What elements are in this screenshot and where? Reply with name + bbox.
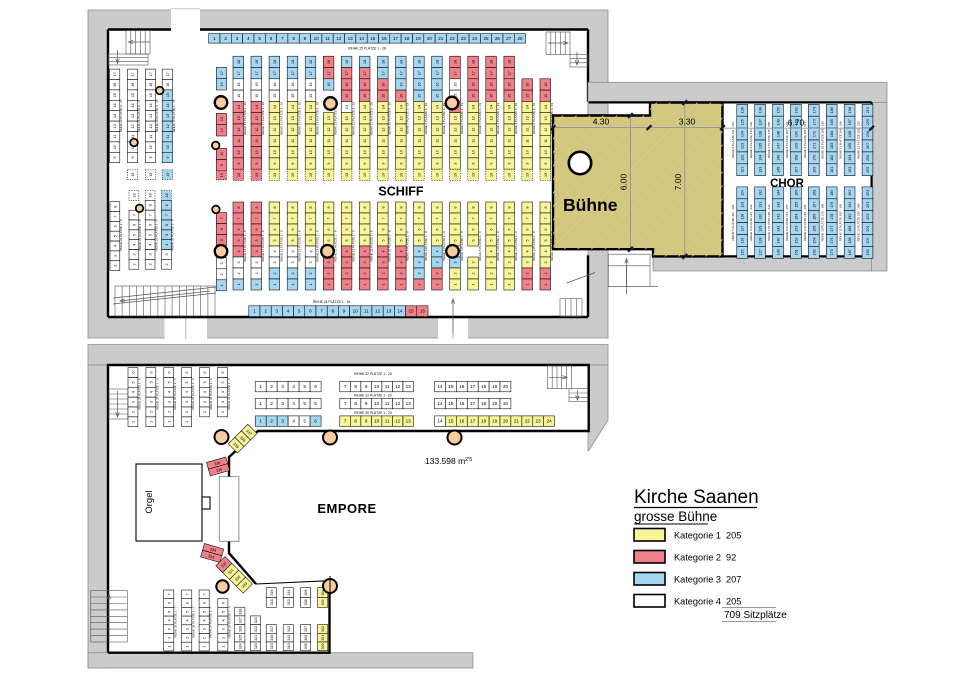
svg-text:9: 9 — [365, 401, 368, 406]
svg-text:10: 10 — [291, 150, 295, 154]
svg-text:5: 5 — [165, 234, 169, 236]
svg-text:10: 10 — [237, 150, 241, 154]
svg-text:14: 14 — [399, 105, 403, 109]
svg-text:7: 7 — [435, 217, 439, 219]
svg-text:12: 12 — [435, 128, 439, 132]
svg-text:3: 3 — [544, 261, 548, 263]
svg-text:1: 1 — [273, 283, 277, 285]
svg-text:11: 11 — [472, 139, 476, 143]
svg-text:5: 5 — [221, 611, 225, 613]
svg-text:325: 325 — [238, 635, 242, 641]
svg-text:15: 15 — [273, 94, 277, 98]
svg-text:196: 196 — [848, 131, 852, 137]
svg-text:123: 123 — [741, 143, 745, 149]
svg-text:16: 16 — [327, 82, 331, 86]
svg-text:2: 2 — [237, 272, 241, 274]
svg-text:12: 12 — [131, 124, 135, 128]
svg-text:127: 127 — [759, 249, 763, 255]
svg-text:11: 11 — [381, 139, 385, 143]
svg-text:2: 2 — [221, 637, 225, 639]
svg-text:6: 6 — [309, 309, 312, 314]
svg-text:1: 1 — [185, 421, 189, 423]
svg-text:3: 3 — [291, 261, 295, 263]
svg-text:5: 5 — [345, 239, 349, 241]
svg-text:2: 2 — [526, 272, 530, 274]
svg-text:12: 12 — [291, 128, 295, 132]
svg-text:2: 2 — [203, 637, 207, 639]
svg-text:7: 7 — [113, 215, 117, 217]
svg-text:7: 7 — [220, 217, 224, 219]
svg-text:8: 8 — [237, 206, 241, 208]
svg-text:2: 2 — [309, 272, 313, 274]
svg-text:5: 5 — [381, 239, 385, 241]
svg-text:155: 155 — [794, 202, 798, 208]
svg-text:REIHE 16 PLÄTZE 1 - 8: REIHE 16 PLÄTZE 1 - 8 — [279, 230, 283, 262]
svg-text:4: 4 — [292, 401, 295, 406]
svg-text:13: 13 — [435, 116, 439, 120]
svg-text:4: 4 — [292, 384, 295, 389]
svg-text:4: 4 — [167, 619, 171, 621]
svg-text:1: 1 — [253, 309, 256, 314]
svg-text:19: 19 — [416, 36, 422, 41]
svg-text:5: 5 — [237, 239, 241, 241]
svg-text:12: 12 — [363, 128, 367, 132]
svg-text:5: 5 — [303, 419, 306, 424]
svg-text:4: 4 — [255, 250, 259, 252]
svg-text:REIHE 6 PLÄTZE 133 - 138: REIHE 6 PLÄTZE 133 - 138 — [749, 122, 753, 158]
svg-text:144: 144 — [777, 190, 781, 196]
svg-text:12: 12 — [327, 128, 331, 132]
svg-text:149: 149 — [777, 119, 781, 125]
svg-text:2: 2 — [167, 637, 171, 639]
svg-text:9: 9 — [363, 163, 367, 165]
svg-text:14: 14 — [273, 105, 277, 109]
svg-text:203: 203 — [866, 202, 870, 208]
svg-text:15: 15 — [237, 94, 241, 98]
svg-text:17: 17 — [435, 71, 439, 75]
svg-text:20: 20 — [503, 419, 509, 424]
svg-text:5: 5 — [203, 611, 207, 613]
svg-text:REIHE 13 PLÄTZE 1 - 8: REIHE 13 PLÄTZE 1 - 8 — [334, 230, 338, 262]
svg-text:7: 7 — [472, 217, 476, 219]
svg-text:16: 16 — [454, 82, 458, 86]
svg-text:6.70: 6.70 — [788, 118, 805, 128]
svg-text:7: 7 — [363, 217, 367, 219]
svg-text:REIHE 18 PLÄTZE 1 - 8: REIHE 18 PLÄTZE 1 - 8 — [243, 230, 247, 262]
svg-text:13: 13 — [220, 117, 224, 121]
svg-text:6: 6 — [314, 419, 317, 424]
svg-text:169: 169 — [812, 167, 816, 173]
svg-text:7: 7 — [490, 217, 494, 219]
svg-text:17: 17 — [381, 71, 385, 75]
svg-text:1: 1 — [490, 283, 494, 285]
svg-text:15: 15 — [345, 94, 349, 98]
svg-text:REIHE 17 PLÄTZE 1 - 8: REIHE 17 PLÄTZE 1 - 8 — [261, 230, 265, 262]
svg-text:19: 19 — [255, 173, 259, 177]
svg-text:13: 13 — [508, 116, 512, 120]
svg-text:5: 5 — [298, 309, 301, 314]
svg-text:4: 4 — [132, 244, 136, 246]
svg-text:REIHE 7 PLÄTZE 1 - 8: REIHE 7 PLÄTZE 1 - 8 — [442, 231, 446, 261]
svg-text:9: 9 — [304, 36, 307, 41]
svg-text:15: 15 — [399, 94, 403, 98]
svg-text:14: 14 — [417, 105, 421, 109]
svg-text:19: 19 — [417, 173, 421, 177]
svg-text:10: 10 — [374, 419, 380, 424]
svg-text:187: 187 — [848, 249, 852, 255]
svg-text:REIHE 6 PLÄTZE 1 - 8: REIHE 6 PLÄTZE 1 - 8 — [460, 231, 464, 261]
svg-text:13: 13 — [386, 309, 392, 314]
svg-text:16: 16 — [544, 82, 548, 86]
svg-text:12: 12 — [395, 419, 401, 424]
svg-text:4: 4 — [381, 250, 385, 252]
svg-text:23: 23 — [461, 36, 467, 41]
svg-text:15: 15 — [363, 94, 367, 98]
svg-text:7: 7 — [281, 36, 284, 41]
svg-text:8: 8 — [544, 206, 548, 208]
svg-text:5: 5 — [221, 381, 225, 383]
svg-text:4: 4 — [273, 250, 277, 252]
svg-text:13: 13 — [131, 114, 135, 118]
svg-text:2: 2 — [270, 401, 273, 406]
svg-text:3: 3 — [132, 253, 136, 255]
svg-text:140: 140 — [777, 237, 781, 243]
svg-text:6: 6 — [149, 371, 153, 373]
svg-text:1: 1 — [526, 283, 530, 285]
svg-text:5: 5 — [113, 235, 117, 237]
svg-text:24: 24 — [547, 419, 553, 424]
svg-text:REIHE 12 PLÄTZE 9 - 19: REIHE 12 PLÄTZE 9 - 19 — [352, 102, 356, 135]
svg-text:200: 200 — [866, 237, 870, 243]
svg-text:2: 2 — [131, 411, 135, 413]
svg-text:197: 197 — [848, 119, 852, 125]
svg-text:191: 191 — [848, 202, 852, 208]
svg-text:163: 163 — [812, 249, 816, 255]
svg-text:REIHE 31 PLÄTZE 1 - 20: REIHE 31 PLÄTZE 1 - 20 — [354, 393, 392, 397]
svg-text:15: 15 — [113, 93, 117, 97]
svg-text:125: 125 — [741, 119, 745, 125]
svg-text:2: 2 — [399, 272, 403, 274]
svg-text:10: 10 — [255, 150, 259, 154]
svg-text:178: 178 — [830, 214, 834, 220]
svg-text:4: 4 — [508, 250, 512, 252]
svg-text:307: 307 — [304, 626, 308, 632]
svg-text:8: 8 — [417, 206, 421, 208]
svg-text:10: 10 — [417, 150, 421, 154]
svg-text:120: 120 — [741, 190, 745, 196]
svg-text:206: 206 — [866, 155, 870, 161]
svg-text:17: 17 — [345, 71, 349, 75]
svg-text:177: 177 — [830, 226, 834, 232]
svg-text:14: 14 — [345, 105, 349, 109]
svg-text:1: 1 — [381, 283, 385, 285]
svg-text:15: 15 — [448, 401, 454, 406]
svg-text:7: 7 — [345, 217, 349, 219]
svg-text:11: 11 — [385, 401, 390, 406]
svg-text:18: 18 — [273, 60, 277, 64]
svg-text:13: 13 — [166, 114, 170, 118]
svg-text:157: 157 — [794, 167, 798, 173]
svg-text:2: 2 — [221, 411, 225, 413]
svg-text:6: 6 — [149, 224, 153, 226]
svg-text:REIHE 2 PLÄTZE 1 - 8: REIHE 2 PLÄTZE 1 - 8 — [532, 231, 536, 261]
svg-text:15: 15 — [448, 419, 454, 424]
svg-text:4: 4 — [221, 391, 225, 393]
svg-text:2: 2 — [132, 263, 136, 265]
svg-text:2: 2 — [167, 411, 171, 413]
svg-text:19: 19 — [363, 173, 367, 177]
svg-text:1: 1 — [259, 419, 262, 424]
svg-text:16: 16 — [490, 82, 494, 86]
svg-text:18: 18 — [165, 193, 169, 197]
svg-text:16: 16 — [459, 419, 465, 424]
svg-text:150: 150 — [777, 107, 781, 113]
svg-text:15: 15 — [370, 36, 376, 41]
svg-text:142: 142 — [777, 214, 781, 220]
svg-text:9: 9 — [255, 163, 259, 165]
svg-text:SCHIFF: SCHIFF — [378, 185, 424, 199]
svg-text:REIHE 10 PLÄTZE 175 - 180: REIHE 10 PLÄTZE 175 - 180 — [821, 203, 825, 241]
svg-text:18: 18 — [255, 60, 259, 64]
svg-text:8: 8 — [490, 206, 494, 208]
svg-text:Bühne: Bühne — [563, 195, 618, 215]
svg-text:13: 13 — [255, 116, 259, 120]
svg-text:139: 139 — [777, 249, 781, 255]
svg-text:18: 18 — [472, 60, 476, 64]
svg-text:12: 12 — [149, 124, 153, 128]
svg-text:1: 1 — [255, 283, 259, 285]
svg-text:28: 28 — [517, 36, 523, 41]
svg-text:19: 19 — [508, 173, 512, 177]
svg-text:301: 301 — [321, 635, 325, 641]
svg-text:5: 5 — [309, 239, 313, 241]
svg-text:14: 14 — [149, 103, 153, 107]
svg-text:REIHE 29 PLÄTZE 1 - 7: REIHE 29 PLÄTZE 1 - 7 — [173, 606, 177, 638]
svg-text:Kategorie 3: Kategorie 3 — [674, 575, 721, 585]
svg-text:8: 8 — [291, 206, 295, 208]
svg-text:14: 14 — [309, 105, 313, 109]
svg-text:7: 7 — [237, 217, 241, 219]
svg-text:REIHE 7 PLÄTZE 145 - 150: REIHE 7 PLÄTZE 145 - 150 — [767, 122, 771, 158]
svg-text:16: 16 — [435, 82, 439, 86]
svg-text:3: 3 — [203, 401, 207, 403]
svg-text:15: 15 — [490, 94, 494, 98]
svg-text:REIHE 4 PLÄTZE 1 - 8: REIHE 4 PLÄTZE 1 - 8 — [496, 231, 500, 261]
svg-text:17: 17 — [508, 71, 512, 75]
svg-text:11: 11 — [309, 139, 313, 143]
svg-text:6: 6 — [399, 228, 403, 230]
svg-text:5: 5 — [303, 401, 306, 406]
svg-text:205: 205 — [866, 167, 870, 173]
svg-text:5: 5 — [303, 384, 306, 389]
svg-text:3: 3 — [221, 401, 225, 403]
svg-text:168: 168 — [812, 190, 816, 196]
svg-text:11: 11 — [345, 139, 349, 143]
svg-text:10: 10 — [526, 150, 530, 154]
svg-text:5: 5 — [167, 381, 171, 383]
svg-text:170: 170 — [812, 155, 816, 161]
svg-text:4: 4 — [292, 419, 295, 424]
svg-text:18: 18 — [237, 60, 241, 64]
svg-text:6: 6 — [221, 602, 225, 604]
svg-text:16: 16 — [291, 82, 295, 86]
svg-text:11: 11 — [385, 419, 390, 424]
svg-text:10: 10 — [363, 150, 367, 154]
svg-text:2: 2 — [203, 411, 207, 413]
svg-text:193: 193 — [848, 167, 852, 173]
svg-text:7: 7 — [320, 309, 323, 314]
svg-text:7: 7 — [417, 217, 421, 219]
svg-text:5: 5 — [131, 381, 135, 383]
svg-text:6: 6 — [270, 36, 273, 41]
svg-text:7: 7 — [273, 217, 277, 219]
svg-text:REIHE 23 PLÄTZE 2 - 8: REIHE 23 PLÄTZE 2 - 8 — [119, 219, 123, 251]
svg-text:181: 181 — [830, 167, 834, 173]
svg-text:192: 192 — [848, 190, 852, 196]
svg-text:REIHE 5 PLÄTZE 115 - 120: REIHE 5 PLÄTZE 115 - 120 — [731, 204, 735, 240]
svg-text:15: 15 — [166, 93, 170, 97]
svg-text:3: 3 — [255, 261, 259, 263]
svg-text:19: 19 — [220, 173, 224, 177]
svg-text:15: 15 — [381, 94, 385, 98]
svg-text:3: 3 — [167, 628, 171, 630]
svg-text:118: 118 — [741, 214, 745, 220]
svg-text:REIHE 24 PLÄTZE 1 - 16: REIHE 24 PLÄTZE 1 - 16 — [313, 300, 351, 304]
svg-text:12: 12 — [166, 124, 170, 128]
svg-text:5: 5 — [327, 239, 331, 241]
svg-text:5: 5 — [508, 239, 512, 241]
svg-text:9: 9 — [365, 384, 368, 389]
svg-text:8: 8 — [399, 206, 403, 208]
svg-text:5: 5 — [185, 611, 189, 613]
svg-text:16: 16 — [459, 384, 465, 389]
svg-text:1: 1 — [544, 283, 548, 285]
svg-text:5: 5 — [544, 239, 548, 241]
svg-text:6: 6 — [472, 228, 476, 230]
svg-text:19: 19 — [327, 173, 331, 177]
svg-text:122: 122 — [741, 155, 745, 161]
svg-text:Kategorie 2: Kategorie 2 — [674, 553, 721, 563]
svg-text:25: 25 — [483, 36, 489, 41]
svg-text:7: 7 — [344, 384, 347, 389]
svg-text:17: 17 — [470, 419, 476, 424]
svg-text:13: 13 — [454, 116, 458, 120]
svg-text:153: 153 — [794, 226, 798, 232]
svg-text:6: 6 — [255, 228, 259, 230]
svg-text:3: 3 — [185, 628, 189, 630]
svg-text:REIHE 25 PLÄTZE 1 - 28: REIHE 25 PLÄTZE 1 - 28 — [348, 47, 386, 51]
svg-text:10: 10 — [490, 150, 494, 154]
svg-text:2: 2 — [327, 272, 331, 274]
svg-text:REIHE 12 PLÄTZE 205 - 210: REIHE 12 PLÄTZE 205 - 210 — [857, 121, 861, 159]
svg-text:9: 9 — [435, 163, 439, 165]
svg-text:1: 1 — [167, 421, 171, 423]
svg-text:3: 3 — [345, 261, 349, 263]
svg-text:REIHE 21 PLÄTZE 2 - 8: REIHE 21 PLÄTZE 2 - 8 — [154, 219, 158, 251]
svg-text:164: 164 — [812, 237, 816, 243]
svg-text:10: 10 — [454, 150, 458, 154]
svg-text:207: 207 — [726, 575, 741, 585]
svg-text:4: 4 — [309, 250, 313, 252]
svg-text:4: 4 — [435, 250, 439, 252]
svg-text:6: 6 — [167, 602, 171, 604]
svg-text:171: 171 — [812, 143, 816, 149]
svg-text:17: 17 — [220, 71, 224, 75]
svg-text:REIHE 5 PLÄTZE 1 - 8: REIHE 5 PLÄTZE 1 - 8 — [478, 231, 482, 261]
svg-text:6: 6 — [131, 371, 135, 373]
svg-text:15: 15 — [417, 94, 421, 98]
svg-text:16: 16 — [237, 82, 241, 86]
svg-text:REIHE 4 PLÄTZE 9 - 19: REIHE 4 PLÄTZE 9 - 19 — [496, 102, 500, 134]
svg-text:18: 18 — [399, 60, 403, 64]
svg-text:13: 13 — [472, 116, 476, 120]
svg-text:REIHE 8 PLÄTZE 1 - 8: REIHE 8 PLÄTZE 1 - 8 — [424, 231, 428, 261]
svg-text:8: 8 — [454, 206, 458, 208]
svg-text:6: 6 — [291, 228, 295, 230]
svg-text:156: 156 — [794, 190, 798, 196]
svg-text:4: 4 — [185, 391, 189, 393]
svg-text:92: 92 — [726, 553, 736, 563]
svg-text:2: 2 — [291, 272, 295, 274]
svg-text:186: 186 — [830, 107, 834, 113]
svg-text:7: 7 — [508, 217, 512, 219]
svg-text:8: 8 — [309, 206, 313, 208]
svg-text:14: 14 — [437, 419, 443, 424]
svg-text:13: 13 — [417, 116, 421, 120]
svg-text:321: 321 — [254, 635, 258, 641]
svg-text:3: 3 — [381, 261, 385, 263]
svg-text:7: 7 — [344, 401, 347, 406]
svg-text:11: 11 — [385, 384, 390, 389]
svg-text:REIHE 1 PLÄTZE 9 - 19: REIHE 1 PLÄTZE 9 - 19 — [550, 102, 554, 134]
svg-text:REIHE 7 PLÄTZE 139 - 144: REIHE 7 PLÄTZE 139 - 144 — [767, 204, 771, 240]
svg-text:6: 6 — [203, 371, 207, 373]
svg-text:REIHE 3 PLÄTZE 1 - 8: REIHE 3 PLÄTZE 1 - 8 — [514, 231, 518, 261]
svg-text:320: 320 — [254, 643, 258, 649]
svg-text:309: 309 — [304, 590, 308, 596]
svg-text:4: 4 — [287, 309, 290, 314]
svg-text:17: 17 — [472, 71, 476, 75]
svg-text:3: 3 — [363, 261, 367, 263]
svg-text:8: 8 — [255, 206, 259, 208]
svg-text:13: 13 — [327, 116, 331, 120]
svg-text:11: 11 — [291, 139, 295, 143]
svg-text:Kategorie 1: Kategorie 1 — [674, 531, 721, 541]
svg-text:12: 12 — [490, 128, 494, 132]
svg-text:2: 2 — [149, 411, 153, 413]
svg-text:13: 13 — [406, 401, 412, 406]
svg-text:15: 15 — [508, 94, 512, 98]
svg-text:11: 11 — [454, 139, 458, 143]
svg-text:20: 20 — [503, 401, 509, 406]
svg-text:189: 189 — [848, 226, 852, 232]
svg-text:16: 16 — [382, 36, 388, 41]
svg-text:11: 11 — [399, 139, 403, 143]
svg-text:6: 6 — [221, 371, 225, 373]
svg-text:17: 17 — [327, 71, 331, 75]
svg-text:14: 14 — [437, 384, 443, 389]
svg-text:7: 7 — [149, 214, 153, 216]
svg-text:5: 5 — [273, 239, 277, 241]
svg-text:302: 302 — [321, 626, 325, 632]
svg-text:14: 14 — [166, 103, 170, 107]
svg-text:2: 2 — [220, 273, 224, 275]
svg-text:6: 6 — [113, 225, 117, 227]
svg-text:6: 6 — [526, 228, 530, 230]
svg-text:7: 7 — [203, 593, 207, 595]
svg-text:18: 18 — [291, 60, 295, 64]
svg-text:REIHE 37 PLÄTZE 1 - 6: REIHE 37 PLÄTZE 1 - 6 — [155, 378, 159, 410]
